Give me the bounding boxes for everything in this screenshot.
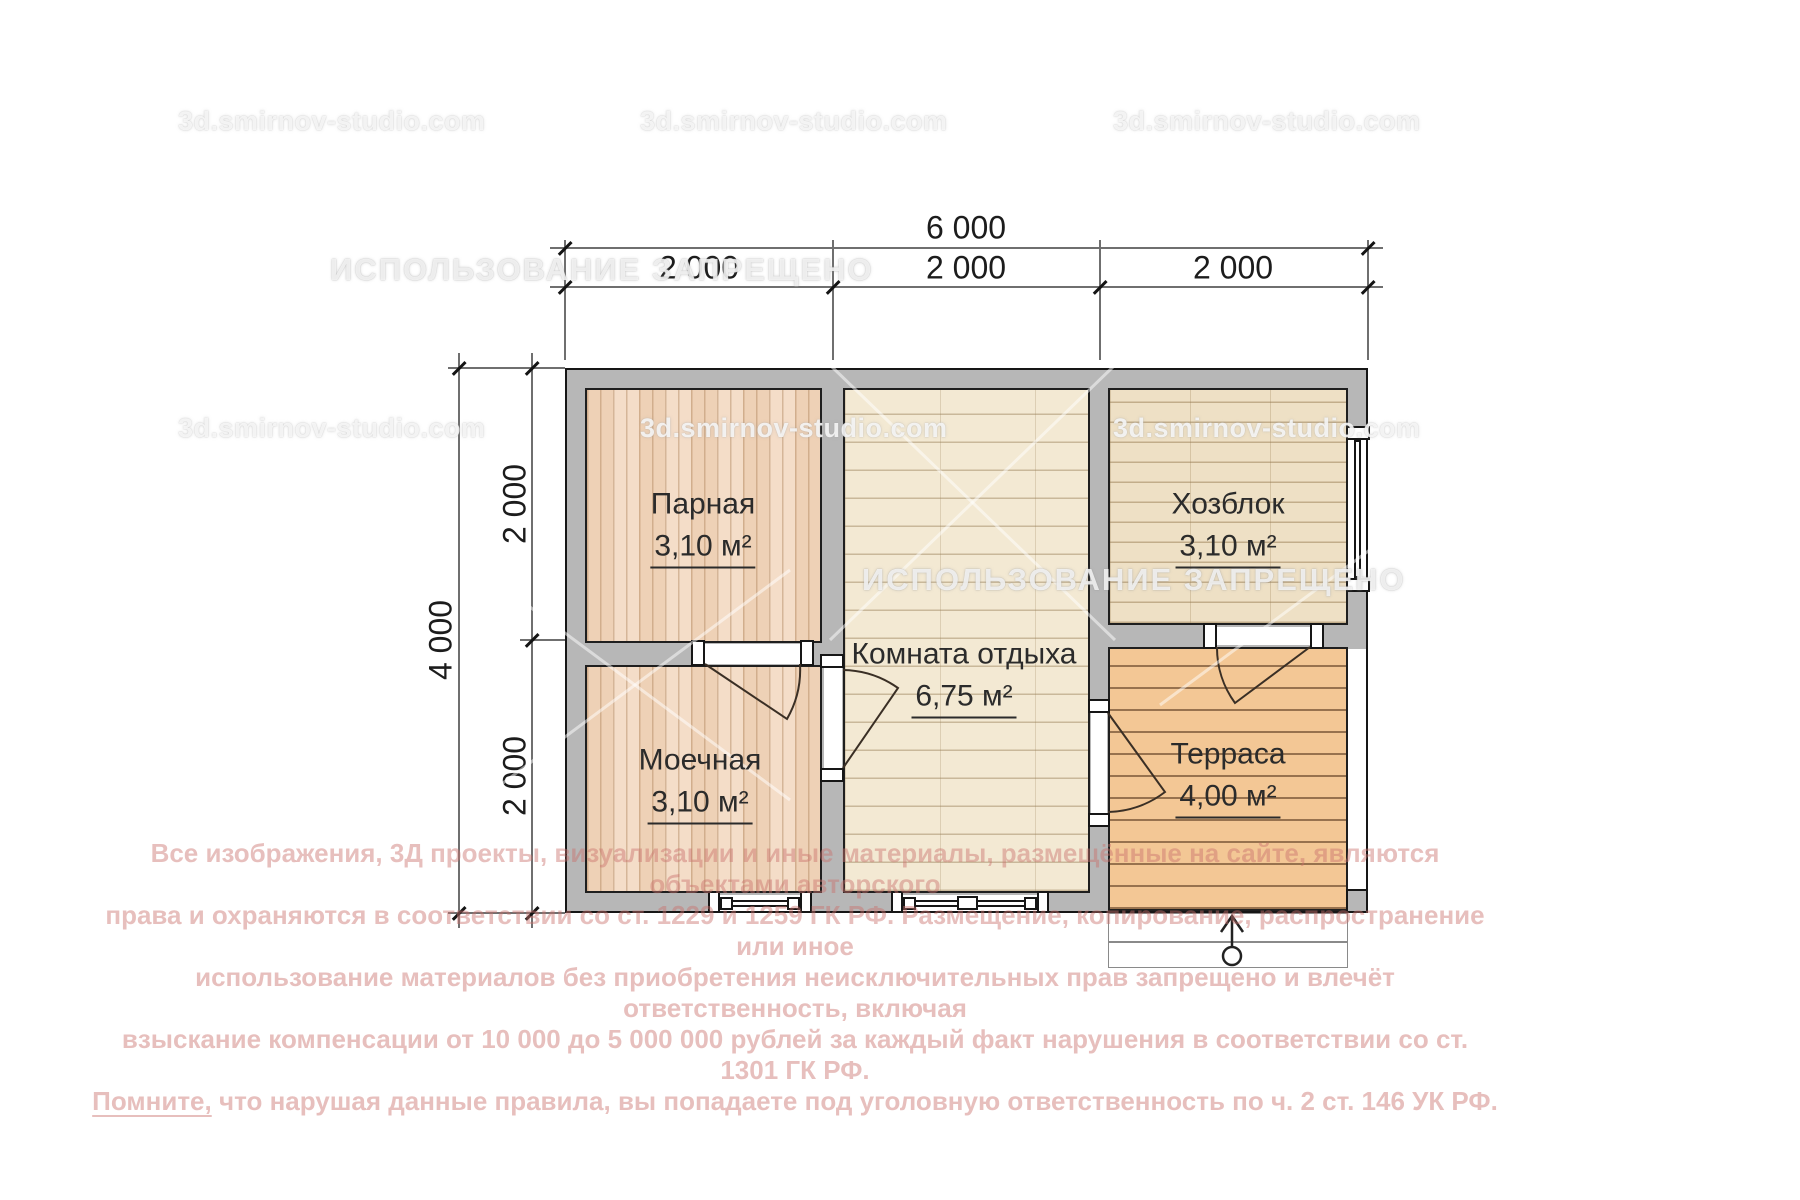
site-watermark: 3d.smirnov-studio.com (1113, 413, 1421, 444)
door-swing-parnaya (705, 664, 800, 719)
copyright-line: права и охраняются в соответствии со ст.… (90, 900, 1500, 962)
floor-plan-canvas: 3d.smirnov-studio.com 3d.smirnov-studio.… (0, 0, 1800, 1200)
copyright-line: Все изображения, 3Д проекты, визуализаци… (90, 838, 1500, 900)
copyright-line-rest: что нарушая данные правила, вы попадаете… (212, 1086, 1498, 1116)
site-watermark: 3d.smirnov-studio.com (178, 413, 486, 444)
room-name: Комната отдыха (852, 638, 1077, 672)
room-label-moechnaya: Моечная 3,10 м² (639, 744, 762, 825)
copyright-line: Помните, что нарушая данные правила, вы … (90, 1086, 1500, 1117)
prohibition-watermark: ИСПОЛЬЗОВАНИЕ ЗАПРЕЩЕНО (862, 562, 1406, 598)
room-name: Моечная (639, 744, 762, 778)
room-area: 3,10 м² (647, 786, 752, 825)
door-swing-hozblok (1217, 647, 1310, 703)
room-name: Хозблок (1172, 488, 1285, 522)
copyright-notice: Все изображения, 3Д проекты, визуализаци… (90, 838, 1500, 1117)
site-watermark: 3d.smirnov-studio.com (1113, 106, 1421, 137)
room-area: 6,75 м² (911, 680, 1016, 719)
room-label-terrasa: Терраса 4,00 м² (1170, 738, 1285, 819)
prohibition-watermark: ИСПОЛЬЗОВАНИЕ ЗАПРЕЩЕНО (330, 252, 874, 288)
room-area: 3,10 м² (650, 530, 755, 569)
copyright-line: использование материалов без приобретени… (90, 962, 1500, 1024)
room-label-parnaya: Парная 3,10 м² (650, 488, 755, 569)
room-name: Парная (650, 488, 755, 522)
site-watermark: 3d.smirnov-studio.com (640, 413, 948, 444)
room-name: Терраса (1170, 738, 1285, 772)
site-watermark: 3d.smirnov-studio.com (640, 106, 948, 137)
door-swing-terrace (1108, 713, 1165, 812)
copyright-line: взыскание компенсации от 10 000 до 5 000… (90, 1024, 1500, 1086)
room-area: 4,00 м² (1175, 780, 1280, 819)
room-label-hozblok: Хозблок 3,10 м² (1172, 488, 1285, 569)
site-watermark: 3d.smirnov-studio.com (178, 106, 486, 137)
copyright-emphasis: Помните, (92, 1086, 212, 1116)
room-label-komnata-otdyha: Комната отдыха 6,75 м² (852, 638, 1077, 719)
